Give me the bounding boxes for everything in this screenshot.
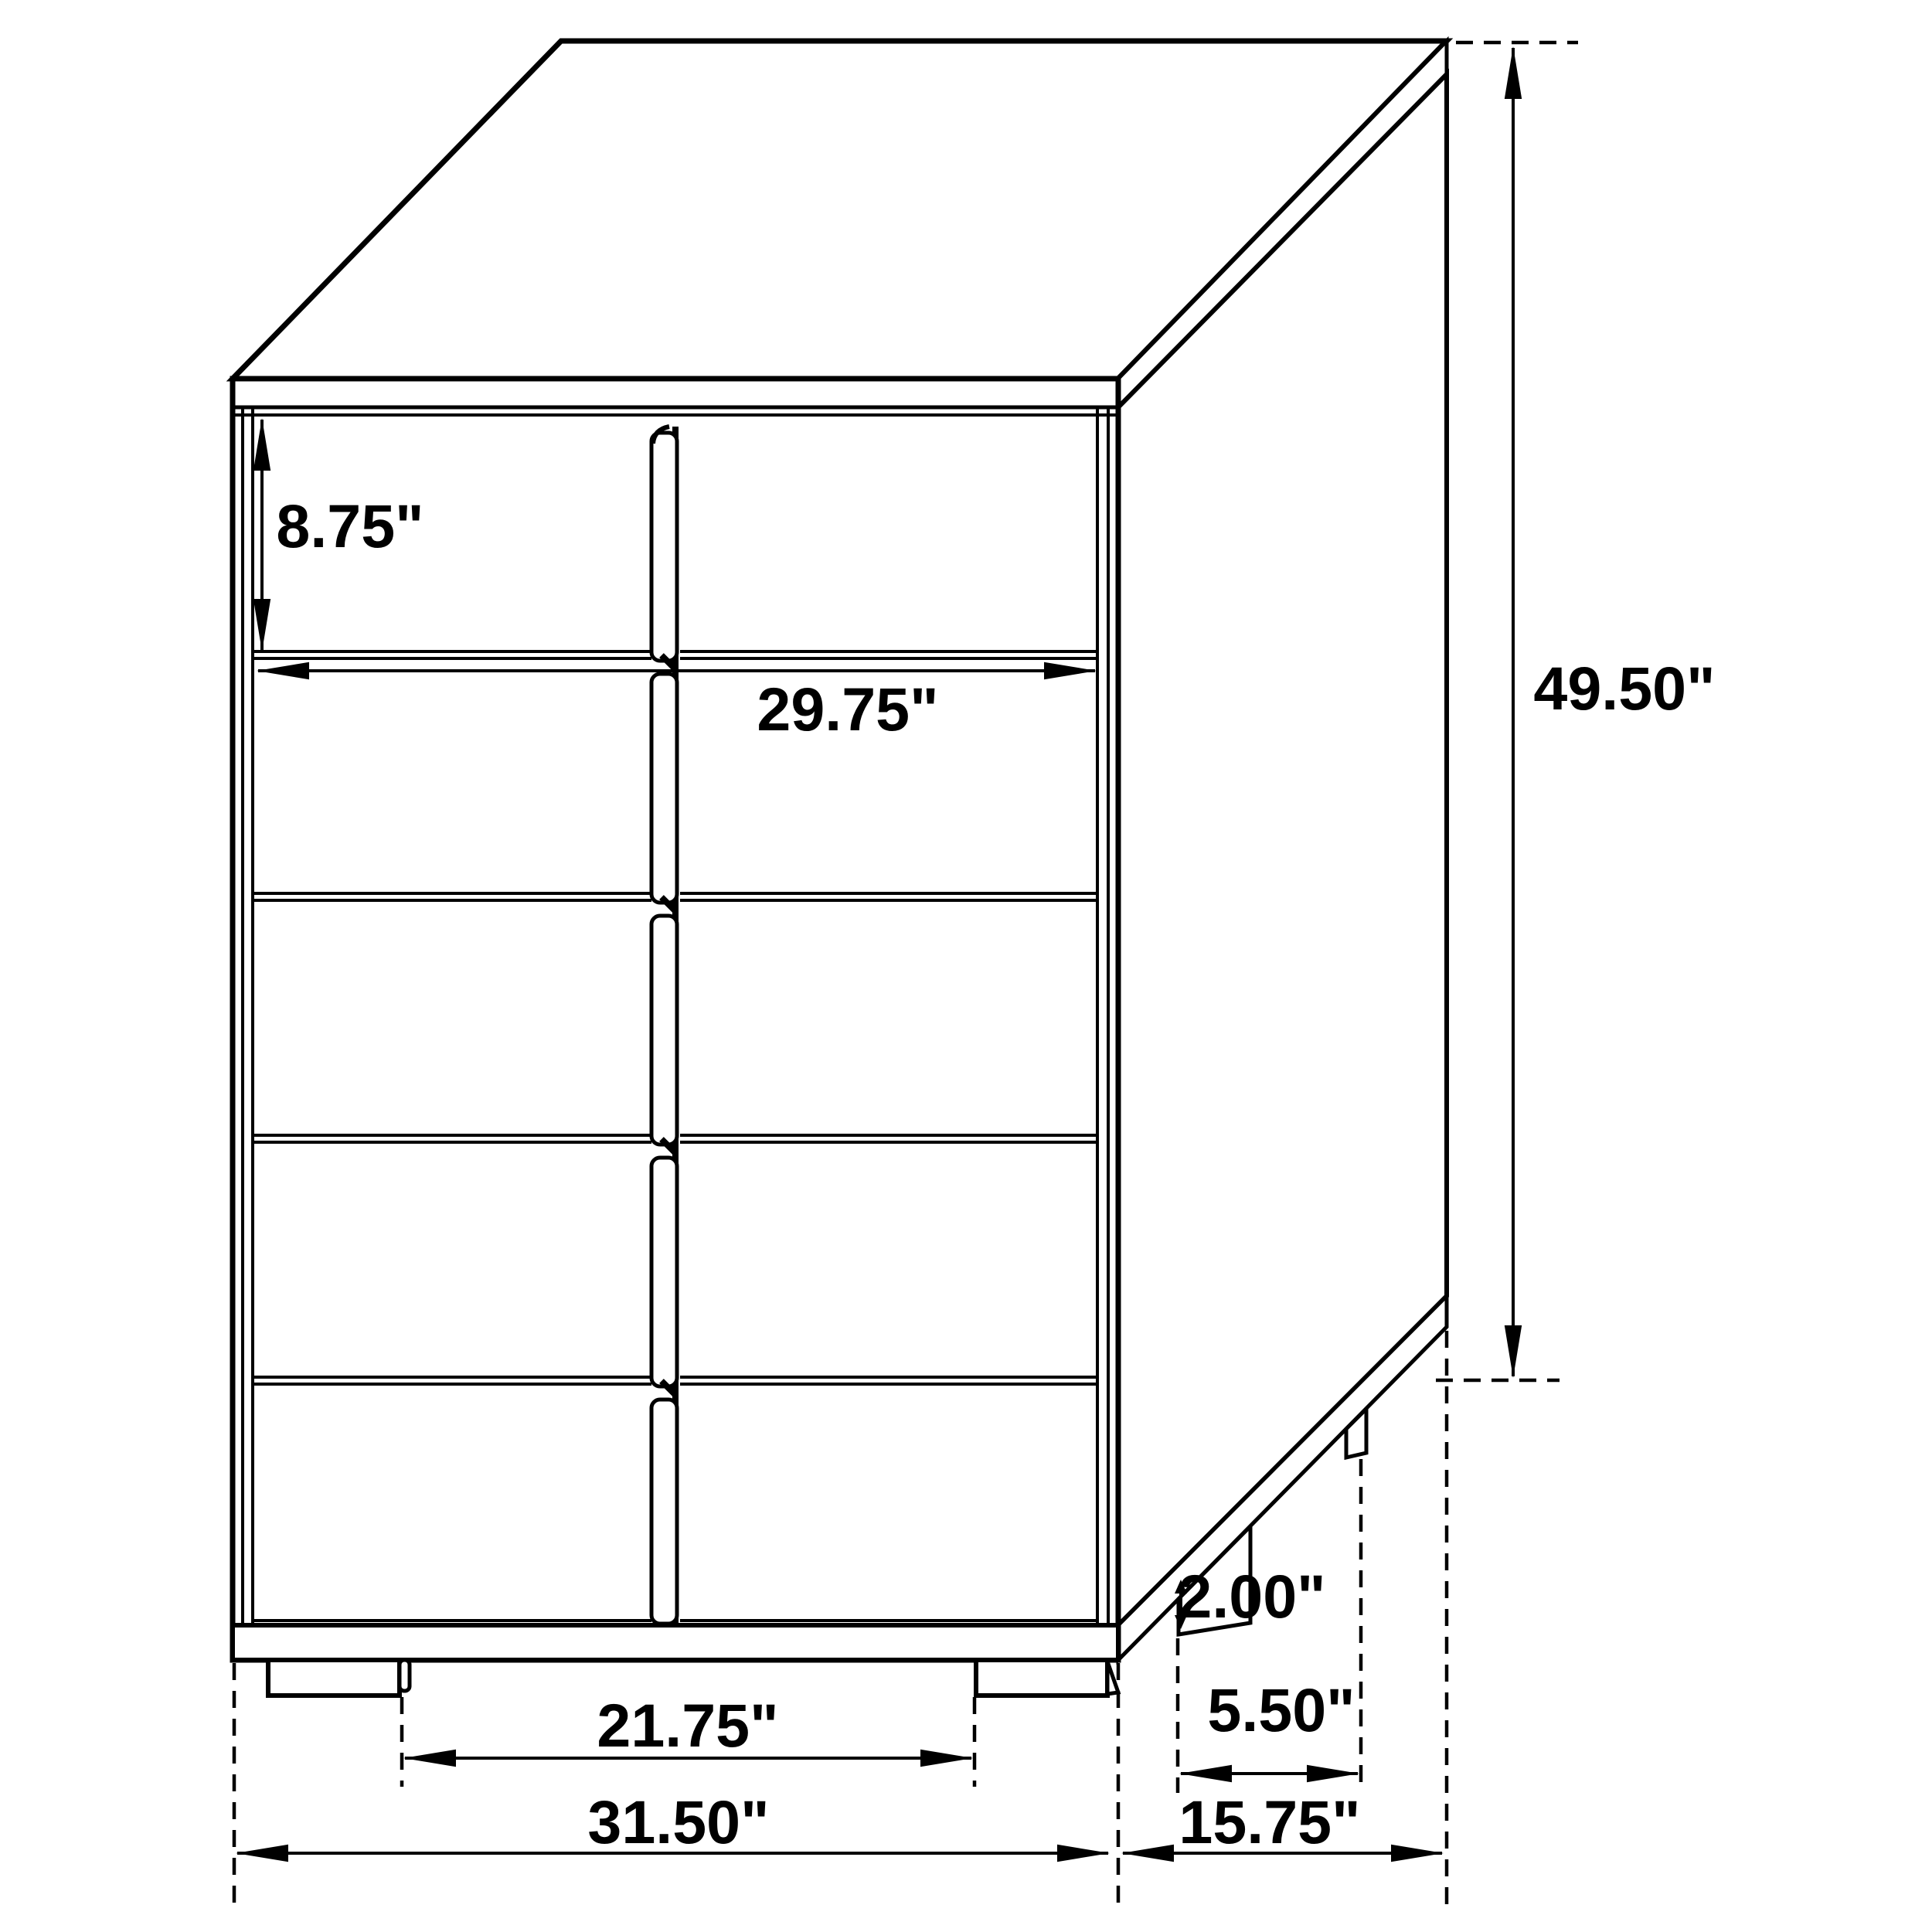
chest-top-slab-front	[233, 379, 1118, 407]
chest-front-base	[233, 1625, 1118, 1660]
dim-label-foot-height: 2.00"	[1178, 1562, 1325, 1631]
drawer-pulls	[651, 427, 677, 1624]
drawer-pull	[651, 433, 677, 661]
drawer-pull	[651, 916, 677, 1145]
dim-label-drawer-width: 29.75"	[757, 675, 938, 743]
dim-foot-height: 2.00"	[1175, 1562, 1326, 1631]
dim-label-overall-width: 31.50"	[587, 1787, 769, 1856]
chest-dimension-drawing: 8.75" 29.75" 49.50" 2.00" 5.50" 21.75"	[0, 0, 1932, 1932]
drawer-pull	[651, 1400, 677, 1624]
dim-label-drawer-height: 8.75"	[276, 492, 423, 560]
front-foot-right	[976, 1660, 1107, 1696]
drawer-pull	[651, 1158, 677, 1386]
dim-label-overall-height: 49.50"	[1533, 654, 1715, 723]
front-foot-left	[268, 1660, 400, 1696]
dim-label-overall-depth: 15.75"	[1179, 1787, 1360, 1856]
front-foot-left-lip	[400, 1660, 410, 1691]
dim-label-side-foot-spacing: 5.50"	[1207, 1675, 1355, 1744]
furniture-dimension-diagram: 8.75" 29.75" 49.50" 2.00" 5.50" 21.75"	[0, 0, 1932, 1932]
drawer-pull	[651, 674, 677, 903]
dim-label-front-feet-spacing: 21.75"	[597, 1691, 778, 1760]
